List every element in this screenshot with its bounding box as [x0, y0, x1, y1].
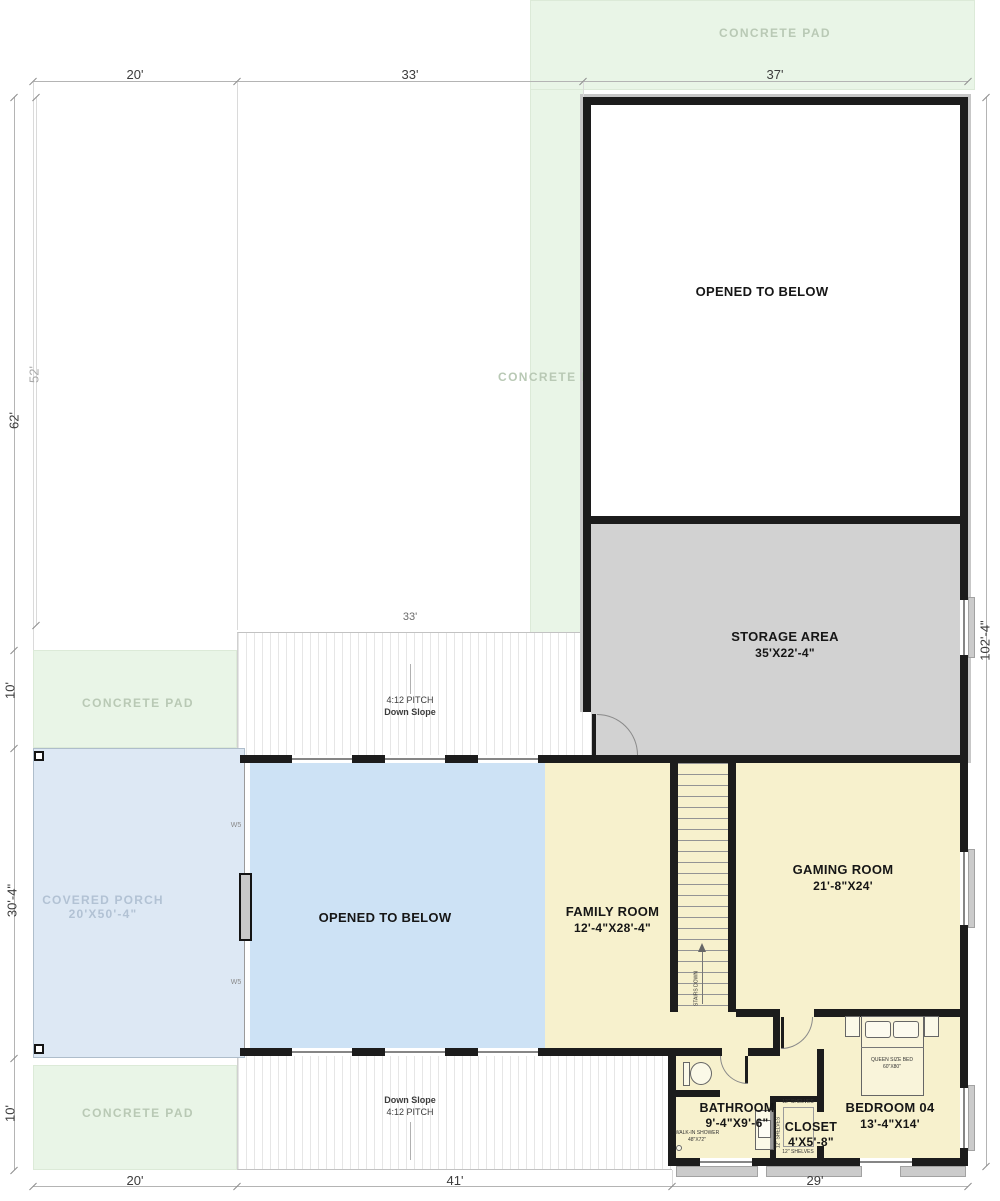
wall-south-open [240, 1048, 292, 1056]
window-sill [968, 849, 975, 928]
shelves-side-label: 12" SHELVES [776, 1115, 783, 1151]
storage-size: 35'X22'-4" [685, 646, 885, 662]
w5-upper-label: W5 [224, 821, 248, 831]
nightstand-left [845, 1016, 860, 1037]
toilet-tank [683, 1062, 690, 1086]
gaming-size: 21'-8"X24' [758, 879, 928, 895]
dim-left-10-bot: 10' [4, 1086, 17, 1142]
family-size: 12'-4"X28'-4" [545, 921, 680, 937]
wall-north [240, 755, 292, 763]
porch-post-bottom [34, 1044, 44, 1054]
dim-left-52: 52' [28, 347, 41, 403]
wall-upper-west [583, 97, 591, 712]
concrete-pad-top-label: CONCRETE PAD [675, 26, 875, 40]
shower-line1: WALK-IN SHOWER [670, 1130, 724, 1137]
opened-lower-label: OPENED TO BELOW [285, 910, 485, 927]
toilet-bowl [690, 1062, 712, 1085]
w5-lower-label: W5 [224, 978, 248, 988]
family-name: FAMILY ROOM [545, 904, 680, 921]
nightstand-right [924, 1016, 939, 1037]
slope-top-line2: Down Slope [360, 707, 460, 719]
shower-line2: 48"X72" [670, 1137, 724, 1144]
opened-to-below-upper-room [591, 105, 960, 524]
window [960, 1088, 968, 1148]
window-sill [900, 1166, 966, 1177]
window [478, 1048, 538, 1056]
concrete-pad-bottom-label: CONCRETE PAD [38, 1106, 238, 1120]
bedroom-size: 13'-4"X14' [820, 1117, 960, 1133]
opened-upper-label: OPENED TO BELOW [662, 284, 862, 301]
window-sill [968, 597, 975, 658]
wall-east [960, 1009, 968, 1088]
porch-post-top [34, 751, 44, 761]
dim-left-62: 62' [8, 393, 21, 449]
storage-door-leaf [592, 714, 596, 755]
dim-line-left [14, 97, 15, 1170]
window [960, 852, 968, 925]
pillow-right [893, 1021, 919, 1038]
dim-mid-33: 33' [390, 612, 430, 623]
wall-north [352, 755, 385, 763]
floor-plan: STAIRS DOWN QUEEN SIZE BED 60"X80" OPENE… [0, 0, 1000, 1201]
slope-top-leader [410, 664, 411, 694]
wall-gaming-south [736, 1009, 780, 1017]
window [478, 755, 538, 763]
window [860, 1158, 912, 1166]
bed-label: QUEEN SIZE BED 60"X80" [858, 1057, 926, 1071]
dim-line-top [33, 81, 968, 82]
upper-frame-right [968, 94, 971, 600]
slope-bottom-line1: Down Slope [360, 1095, 460, 1107]
wall-north [445, 755, 478, 763]
wall-upper-north [583, 97, 968, 105]
dim-left-10-mid: 10' [4, 663, 17, 719]
shelves-bottom-label: 12" SHELVES [778, 1149, 818, 1156]
wall-bath-north-left [668, 1048, 722, 1056]
dim-left-30-4: 30'-4" [6, 871, 19, 931]
wall-upper-east2 [960, 655, 968, 763]
concrete-pad-strip-text: CONCRETE PAD [498, 370, 583, 384]
wall-south-open [352, 1048, 385, 1056]
ext-line-237 [237, 81, 238, 630]
window-sill [676, 1166, 758, 1177]
opened-to-below-lower [250, 763, 545, 1048]
wall-upper-east [960, 97, 968, 600]
ext-line-583 [583, 81, 584, 97]
slope-bottom-label: Down Slope 4:12 PITCH [360, 1095, 460, 1118]
wall-south-open [538, 1048, 668, 1056]
wall-north [538, 755, 583, 763]
window [700, 1158, 752, 1166]
wall-wing-south [668, 1158, 700, 1166]
porch-name: COVERED PORCH [18, 893, 188, 907]
dim-top-33: 33' [355, 68, 465, 81]
window [292, 1048, 352, 1056]
bedroom-name: BEDROOM 04 [820, 1100, 960, 1117]
wall-wing-south [752, 1158, 860, 1166]
porch-pillar [239, 873, 252, 941]
stairs-arrow-line [702, 952, 703, 1004]
dim-bot-20: 20' [80, 1174, 190, 1187]
shower-drain [676, 1145, 682, 1151]
dim-bot-41: 41' [390, 1174, 520, 1187]
slope-bottom-leader [410, 1122, 411, 1160]
stairs-label: STAIRS DOWN [694, 969, 701, 1009]
wall-east [960, 763, 968, 852]
wall-stair-left [670, 763, 678, 1012]
shelves-top-label: 12" SHELVES [778, 1099, 818, 1106]
bed-label-line1: QUEEN SIZE BED [858, 1057, 926, 1064]
slope-top-line1: 4:12 PITCH [360, 695, 460, 707]
window-sill [968, 1085, 975, 1151]
dim-top-20: 20' [80, 68, 190, 81]
window [385, 755, 445, 763]
window [960, 600, 968, 655]
wall-south-open [445, 1048, 478, 1056]
slope-top-label: 4:12 PITCH Down Slope [360, 695, 460, 718]
porch-label: COVERED PORCH 20'X50'-4" [18, 893, 188, 921]
family-label: FAMILY ROOM 12'-4"X28'-4" [545, 904, 680, 936]
wall-wing-south [912, 1158, 966, 1166]
wall-storage-divider [583, 516, 968, 524]
blanket-line [861, 1047, 924, 1048]
window [292, 755, 352, 763]
window [385, 1048, 445, 1056]
shower-label: WALK-IN SHOWER 48"X72" [670, 1130, 724, 1144]
dim-right-102-4: 102'-4" [979, 609, 992, 673]
wall-storage-south [583, 755, 968, 763]
bed-label-line2: 60"X80" [858, 1064, 926, 1071]
wall-stair-right [728, 763, 736, 1012]
stairs-treads [678, 763, 728, 1009]
dim-bot-29: 29' [760, 1174, 870, 1187]
concrete-pad-strip-label: CONCRETE PAD [498, 370, 583, 384]
porch-size: 20'X50'-4" [18, 907, 188, 921]
gaming-name: GAMING ROOM [758, 862, 928, 879]
storage-name: STORAGE AREA [685, 629, 885, 646]
storage-door-gap [583, 712, 591, 755]
storage-label: STORAGE AREA 35'X22'-4" [685, 629, 885, 661]
slope-bottom-line2: 4:12 PITCH [360, 1107, 460, 1119]
concrete-pad-strip [530, 90, 583, 632]
bedroom-label: BEDROOM 04 13'-4"X14' [820, 1100, 960, 1132]
pillow-left [865, 1021, 891, 1038]
gaming-label: GAMING ROOM 21'-8"X24' [758, 862, 928, 894]
stairs-arrow-head [698, 943, 706, 952]
concrete-pad-left-label: CONCRETE PAD [38, 696, 238, 710]
wall-east [960, 925, 968, 1009]
dim-top-37: 37' [720, 68, 830, 81]
upper-frame-right2 [968, 655, 971, 763]
